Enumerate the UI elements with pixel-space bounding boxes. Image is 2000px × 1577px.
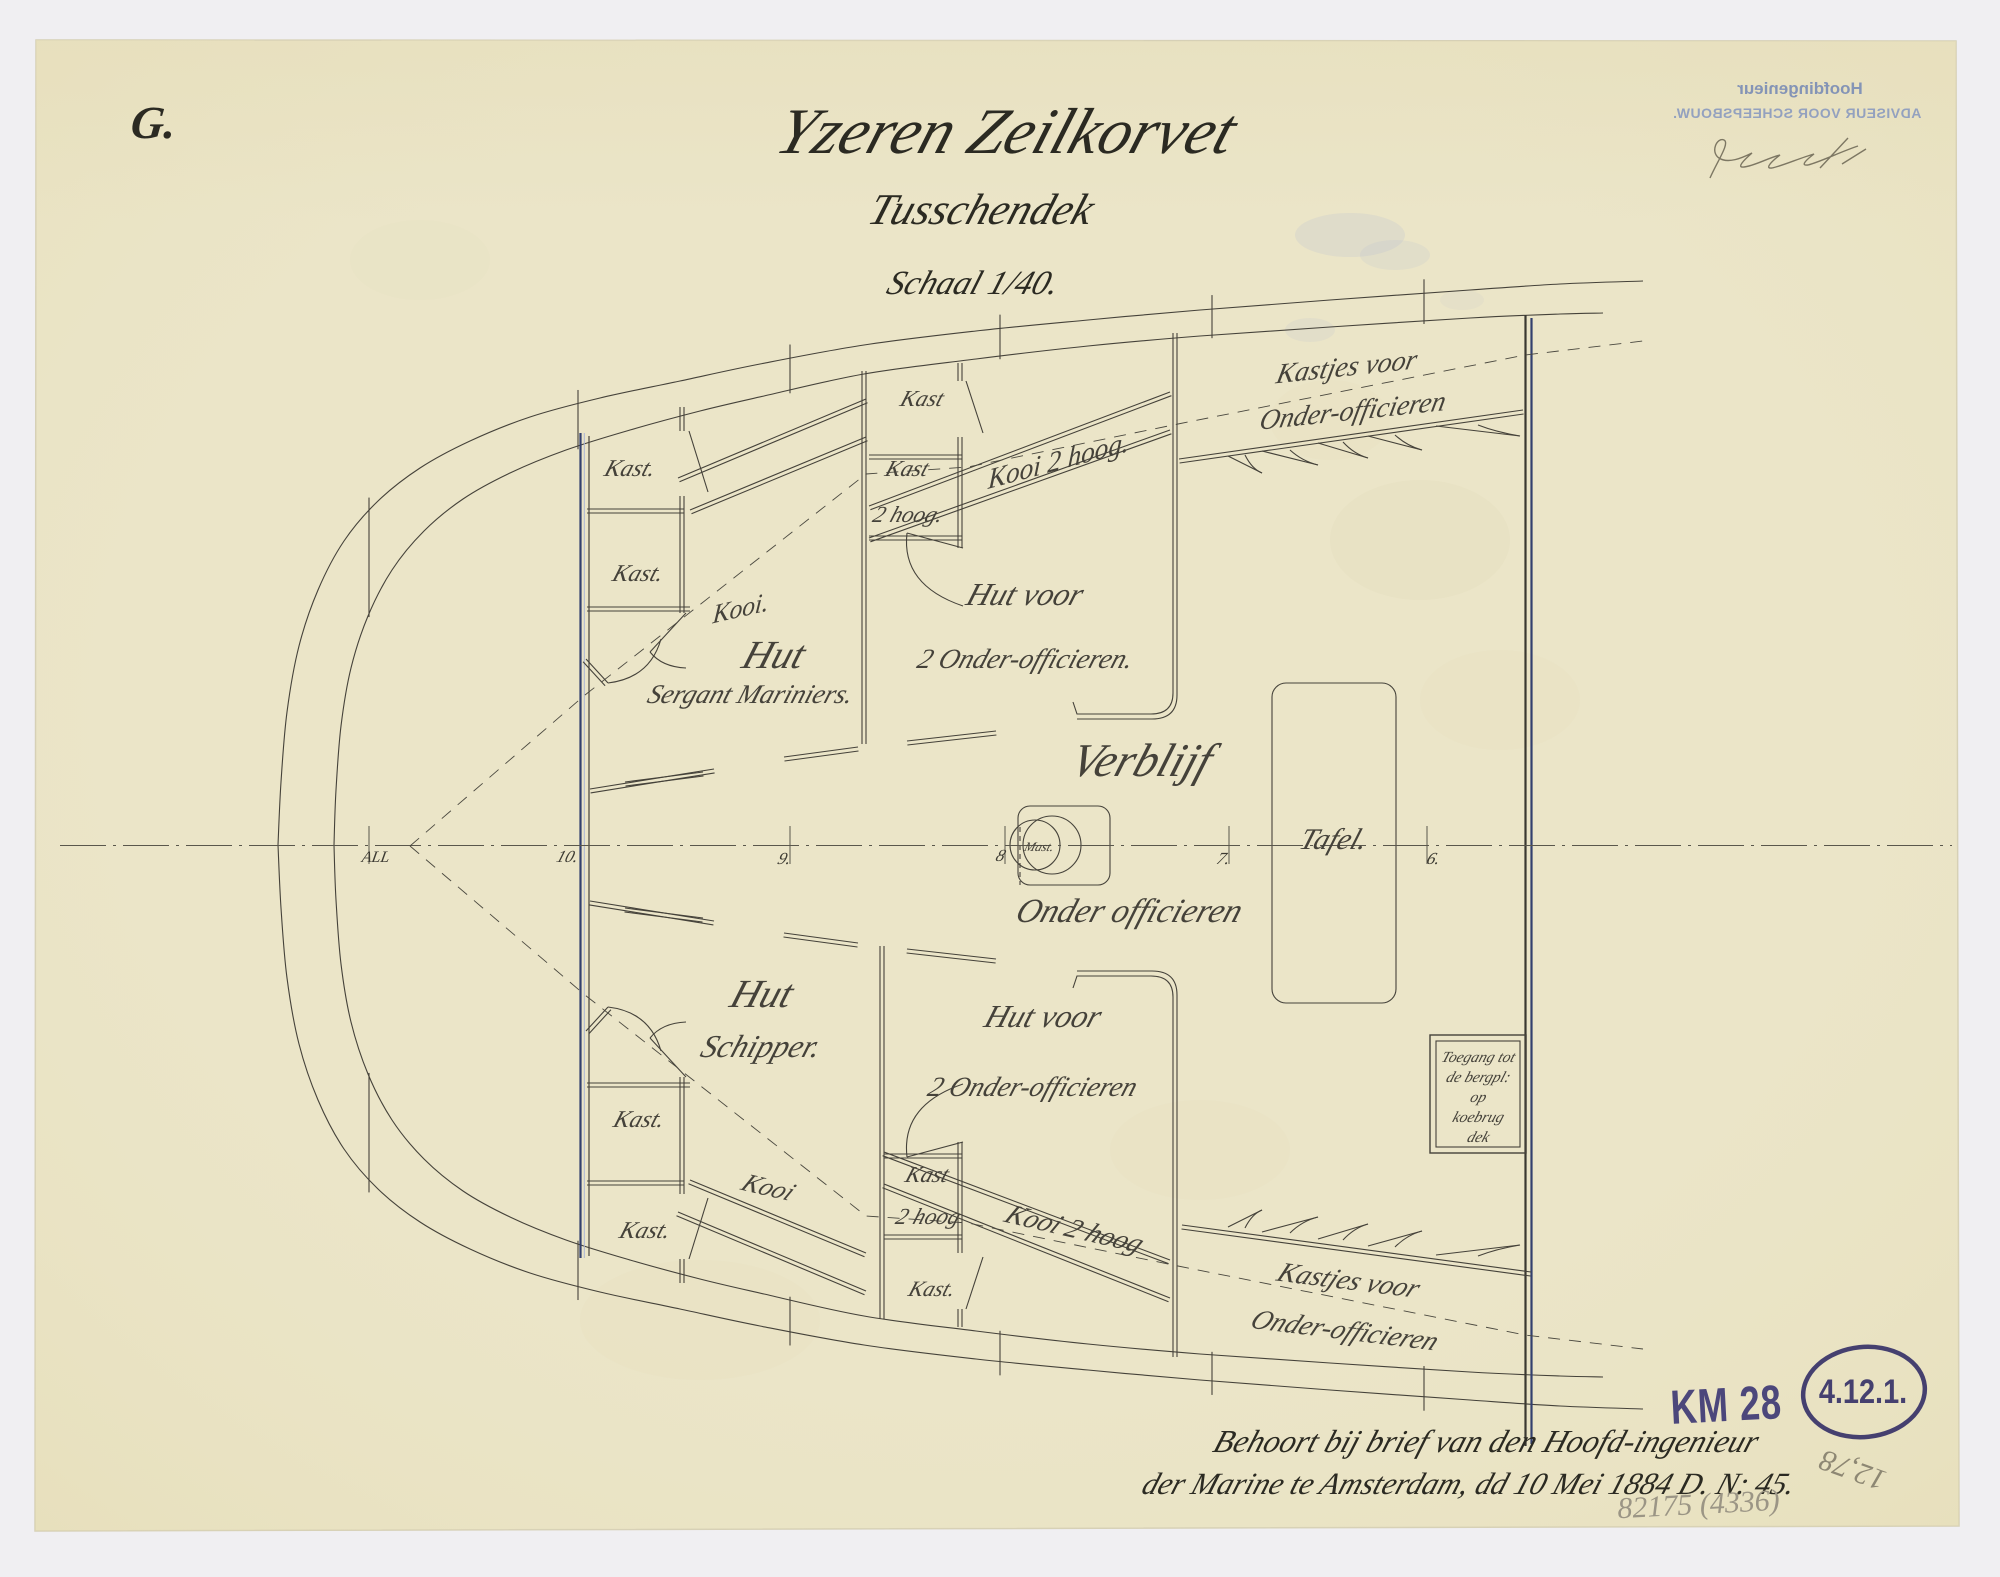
svg-text:Kast.: Kast. <box>600 456 660 482</box>
svg-text:Schipper.: Schipper. <box>696 1030 826 1065</box>
svg-text:Kast.: Kast. <box>609 1107 669 1133</box>
svg-text:2 Onder-officieren: 2 Onder-officieren <box>924 1072 1142 1103</box>
svg-text:koebrug: koebrug <box>1450 1109 1506 1126</box>
svg-text:ADVISEUR VOOR SCHEEPSBOUW.: ADVISEUR VOOR SCHEEPSBOUW. <box>1673 105 1922 121</box>
svg-text:de bergpl:: de bergpl: <box>1444 1069 1513 1086</box>
svg-text:2 hoog.: 2 hoog. <box>870 503 947 528</box>
svg-text:Hoofdingenieur: Hoofdingenieur <box>1737 79 1863 98</box>
svg-text:Toegang tot: Toegang tot <box>1439 1049 1518 1066</box>
svg-text:Kast.: Kast. <box>608 561 668 587</box>
svg-text:Verblijf: Verblijf <box>1064 735 1225 787</box>
svg-text:Onder officieren: Onder officieren <box>1011 892 1248 930</box>
svg-text:Tusschendek: Tusschendek <box>863 185 1102 234</box>
svg-text:Tafel.: Tafel. <box>1296 823 1373 856</box>
svg-text:Mast.: Mast. <box>1021 839 1056 854</box>
svg-text:Sergant Mariniers.: Sergant Mariniers. <box>644 679 858 709</box>
svg-text:Kast.: Kast. <box>905 1277 960 1301</box>
svg-text:KM 28: KM 28 <box>1669 1375 1783 1435</box>
svg-text:Yzeren Zeilkorvet: Yzeren Zeilkorvet <box>768 96 1247 167</box>
svg-text:Schaal 1/40.: Schaal 1/40. <box>883 264 1065 302</box>
svg-text:ALL: ALL <box>360 849 392 866</box>
svg-text:Kast.: Kast. <box>615 1218 675 1244</box>
svg-text:4.12.1.: 4.12.1. <box>1819 1372 1907 1411</box>
svg-text:Hut voor: Hut voor <box>961 578 1088 613</box>
svg-text:Hut voor: Hut voor <box>979 1000 1106 1035</box>
svg-text:2 hoog: 2 hoog <box>893 1205 965 1230</box>
svg-text:2 Onder-officieren.: 2 Onder-officieren. <box>914 644 1139 675</box>
svg-text:G.: G. <box>129 97 179 148</box>
